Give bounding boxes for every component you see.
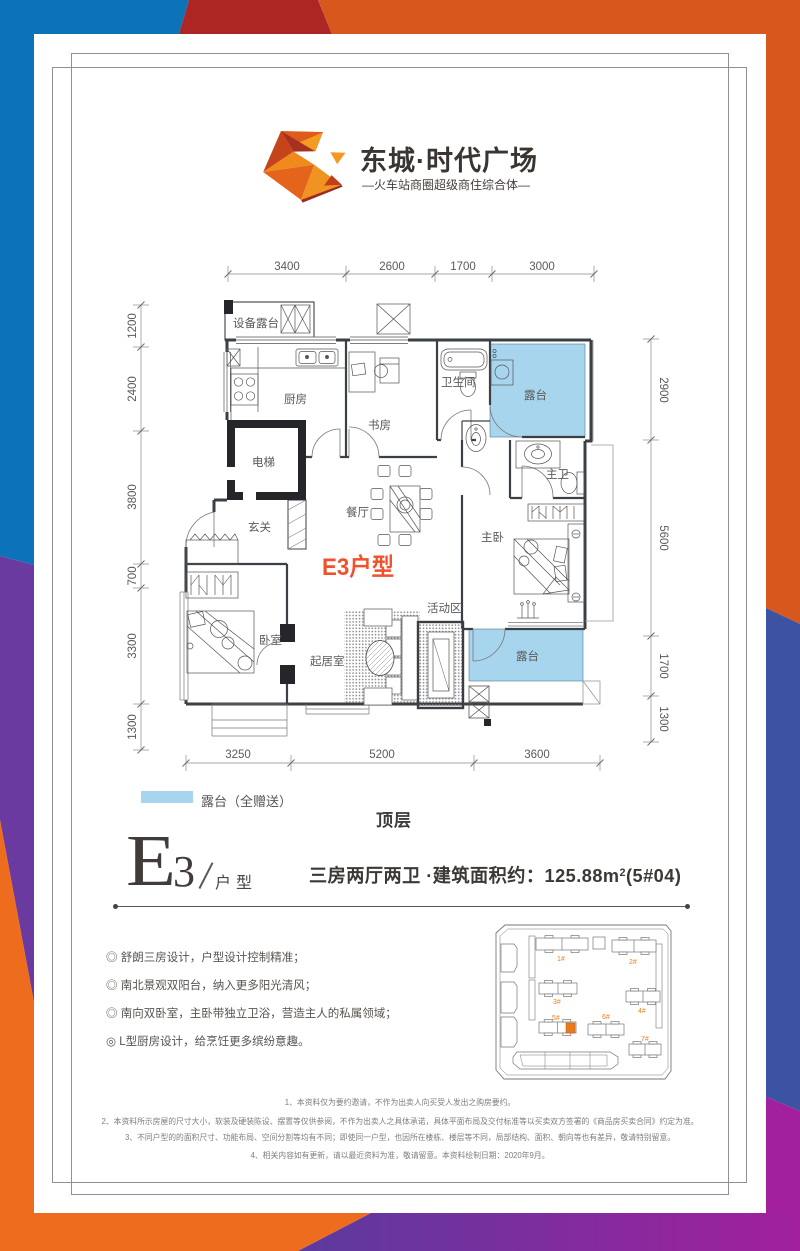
svg-text:书房: 书房: [368, 419, 391, 432]
svg-text:主卧: 主卧: [481, 531, 504, 544]
svg-text:1#: 1#: [557, 956, 565, 963]
svg-text:3#: 3#: [553, 999, 561, 1006]
svg-text:起居室: 起居室: [310, 654, 345, 668]
svg-text:设备露台: 设备露台: [233, 316, 279, 330]
svg-text:2400: 2400: [127, 376, 139, 402]
svg-text:5200: 5200: [369, 749, 395, 761]
svg-text:活动区: 活动区: [427, 601, 462, 615]
svg-text:3000: 3000: [529, 261, 555, 273]
svg-text:3300: 3300: [127, 633, 139, 659]
svg-text:1200: 1200: [127, 313, 139, 339]
svg-text:2900: 2900: [657, 377, 669, 403]
svg-text:5#: 5#: [552, 1015, 560, 1022]
svg-text:玄关: 玄关: [248, 520, 271, 534]
svg-text:厨房: 厨房: [284, 393, 307, 406]
svg-text:700: 700: [127, 566, 139, 585]
svg-text:7#: 7#: [641, 1036, 649, 1043]
svg-text:卫生间: 卫生间: [441, 375, 476, 389]
svg-text:E3户型: E3户型: [322, 553, 394, 581]
svg-text:3600: 3600: [524, 749, 550, 761]
svg-text:卧室: 卧室: [259, 633, 282, 647]
svg-text:电梯: 电梯: [252, 456, 275, 469]
svg-text:3800: 3800: [127, 484, 139, 510]
svg-text:4#: 4#: [638, 1008, 646, 1015]
svg-text:露台: 露台: [524, 388, 547, 402]
svg-text:1700: 1700: [657, 653, 669, 679]
svg-text:2#: 2#: [629, 959, 637, 966]
svg-text:5600: 5600: [657, 525, 669, 551]
svg-text:餐厅: 餐厅: [346, 505, 369, 519]
svg-text:1300: 1300: [657, 706, 669, 732]
svg-text:6#: 6#: [602, 1014, 610, 1021]
svg-text:1700: 1700: [450, 261, 476, 273]
svg-text:1300: 1300: [127, 714, 139, 740]
svg-text:主卫: 主卫: [546, 468, 569, 481]
svg-text:2600: 2600: [379, 261, 405, 273]
svg-text:露台: 露台: [516, 649, 539, 663]
svg-text:3400: 3400: [274, 261, 300, 273]
svg-text:3250: 3250: [225, 749, 251, 761]
